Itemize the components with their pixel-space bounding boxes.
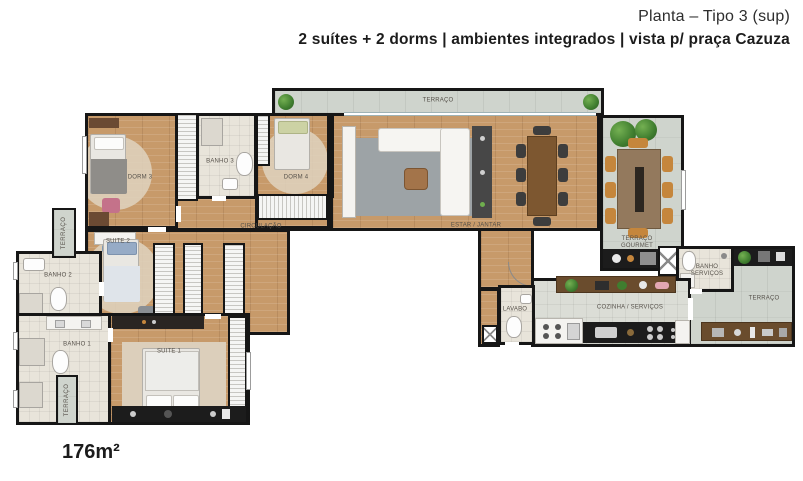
banho3-shower [201, 118, 223, 146]
decor-dot [142, 320, 146, 324]
suite2-bed [103, 239, 139, 301]
gourmet-chair [662, 182, 673, 198]
dorm3-dresser [89, 118, 119, 128]
decor-dot [164, 410, 172, 418]
dorm4-closet [256, 114, 270, 166]
label-banho-servicos: BANHO SERVIÇOS [689, 264, 725, 278]
dorm3-pillow [94, 137, 124, 150]
decor-dot [734, 329, 741, 336]
room-dorm3 [85, 113, 178, 229]
tv-icon [480, 136, 485, 141]
gourmet-chair [605, 182, 616, 198]
dorm3-blanket [91, 159, 127, 194]
dorm4-bed [274, 118, 310, 170]
burner-icon [555, 324, 561, 330]
door-gap [176, 206, 181, 222]
estar-coffee-table [404, 168, 428, 190]
label-banho1: BANHO 1 [63, 341, 91, 348]
kitchen-stove-unit [535, 318, 583, 344]
sink-icon [612, 254, 621, 263]
floor-plan-page: Planta – Tipo 3 (sup) 2 suítes + 2 dorms… [0, 0, 803, 481]
gourmet-chair [628, 138, 648, 148]
suite1-blanket [145, 351, 199, 391]
shower-head-icon [721, 253, 727, 259]
dining-chair [516, 144, 526, 158]
banho2-toilet [50, 287, 67, 311]
window [82, 136, 87, 174]
decor-box [222, 409, 230, 419]
label-terraco-left-lower: TERRAÇO [64, 384, 70, 417]
window [13, 390, 18, 408]
lavabo-toilet [506, 316, 522, 338]
estar-sofa-vertical [440, 128, 470, 216]
page-subtitle: 2 suítes + 2 dorms | ambientes integrado… [298, 31, 790, 49]
utensil-icon [627, 329, 634, 336]
plant-icon [278, 94, 294, 110]
label-cozinha: COZINHA / SERVIÇOS [597, 304, 663, 311]
sliding-door-glass [344, 112, 596, 116]
label-banho2: BANHO 2 [44, 272, 72, 279]
decor-bottle [750, 327, 755, 338]
burner-icon [555, 333, 561, 339]
dining-table [527, 136, 557, 216]
label-dorm3: DORM 3 [128, 174, 153, 181]
door-gap [688, 298, 693, 320]
area-label: 176m² [62, 441, 120, 464]
label-dorm4: DORM 4 [284, 174, 309, 181]
decor-frame [595, 281, 609, 290]
fridge-icon [675, 320, 690, 344]
gourmet-chair [662, 156, 673, 172]
door-gap [108, 328, 113, 342]
burner-icon [657, 334, 663, 340]
banho1-shower2 [19, 382, 43, 408]
gourmet-table [617, 149, 661, 229]
door-gap [205, 314, 221, 319]
label-lavabo: LAVABO [503, 306, 527, 313]
decor-box [712, 328, 724, 337]
room-banho2 [16, 251, 102, 317]
estar-tv-wall [472, 126, 492, 218]
dining-chair [516, 168, 526, 182]
sink-icon [81, 320, 91, 328]
door-gap [212, 196, 226, 201]
decor-box [655, 282, 669, 289]
banho2-sink [23, 258, 45, 271]
banho1-vanity [46, 316, 102, 330]
suite1-dresser [112, 316, 204, 329]
door-gap [690, 289, 702, 294]
door-gap [99, 282, 104, 296]
wall-segment [330, 116, 334, 198]
label-suite1: SUITE 1 [157, 348, 181, 355]
dining-chair [533, 217, 551, 226]
bowl-icon [627, 255, 634, 262]
burner-icon [647, 326, 653, 332]
burner-icon [543, 324, 549, 330]
banho3-toilet [236, 152, 253, 176]
gourmet-chair [605, 208, 616, 224]
gourmet-table-runner [635, 167, 644, 212]
burner-icon [647, 334, 653, 340]
sink-icon [55, 320, 65, 328]
decor-dot [152, 320, 156, 324]
window [13, 262, 18, 280]
entry-door-arc [508, 262, 533, 287]
terrace-shelf [701, 322, 792, 341]
grill-icon [758, 251, 770, 262]
label-terraco-right: TERRAÇO [749, 295, 780, 302]
suite2-wardrobe [183, 243, 203, 320]
gourmet-counter [603, 249, 661, 268]
label-terraco-left-upper: TERRAÇO [61, 217, 67, 250]
gourmet-chair [605, 156, 616, 172]
shaft-x [658, 246, 678, 276]
label-terraco-gourmet: TERRAÇO GOURMET [619, 236, 655, 250]
decor-dot [130, 411, 136, 417]
oven-icon [567, 323, 580, 340]
dorm3-side-table [89, 212, 109, 226]
estar-sideboard [342, 126, 356, 218]
decor-dot [480, 170, 485, 175]
dorm3-closet [176, 113, 198, 201]
burner-icon [657, 326, 663, 332]
suite2-blanket [104, 266, 140, 302]
plant-icon [565, 279, 578, 292]
lavabo-sink [520, 294, 532, 304]
terrace-planter-counter [734, 249, 792, 266]
banho3-sink [222, 178, 238, 190]
room-estar-jantar [330, 113, 600, 231]
shaft-x [482, 325, 498, 344]
dorm4-wardrobe [257, 194, 328, 220]
room-suite1 [108, 313, 250, 425]
dorm3-bed [90, 134, 126, 194]
dining-chair [558, 144, 568, 158]
decor-box [762, 329, 773, 336]
room-lavabo [498, 285, 535, 345]
dining-chair [516, 192, 526, 206]
dining-chair [558, 168, 568, 182]
label-banho3: BANHO 3 [206, 158, 234, 165]
suite1-bed [142, 348, 200, 410]
window [681, 170, 686, 210]
label-estar-jantar: ESTAR / JANTAR [451, 222, 501, 229]
window [13, 332, 18, 350]
room-dorm4 [255, 113, 330, 229]
plant-icon [480, 202, 485, 207]
burner-icon [543, 333, 549, 339]
label-terraco-top: TERRAÇO [423, 97, 454, 104]
sink-icon [595, 327, 617, 338]
dining-chair [558, 192, 568, 206]
grill-icon [640, 252, 656, 265]
label-suite2: SUITE 2 [106, 238, 130, 245]
plant-icon [617, 281, 627, 290]
banho1-toilet [52, 350, 69, 374]
room-hall [478, 228, 534, 290]
dining-chair [533, 126, 551, 135]
plant-icon [738, 251, 751, 264]
decor-dot [210, 411, 216, 417]
room-banho3 [196, 113, 257, 199]
sink-icon [776, 252, 785, 261]
gourmet-chair [662, 208, 673, 224]
decor-dot [639, 281, 647, 289]
door-gap [148, 227, 166, 232]
plant-icon [583, 94, 599, 110]
label-circulacao: CIRCULAÇÃO [240, 223, 281, 230]
banho1-shower [19, 338, 45, 366]
page-title: Planta – Tipo 3 (sup) [638, 8, 790, 26]
decor-box [779, 328, 787, 337]
suite2-wardrobe [153, 243, 175, 317]
dorm3-pouf [102, 198, 120, 213]
kitchen-shelf [556, 276, 676, 293]
window [246, 352, 251, 390]
suite1-shelf [112, 406, 246, 422]
dorm4-pillow [278, 121, 308, 134]
door-gap [505, 342, 519, 347]
